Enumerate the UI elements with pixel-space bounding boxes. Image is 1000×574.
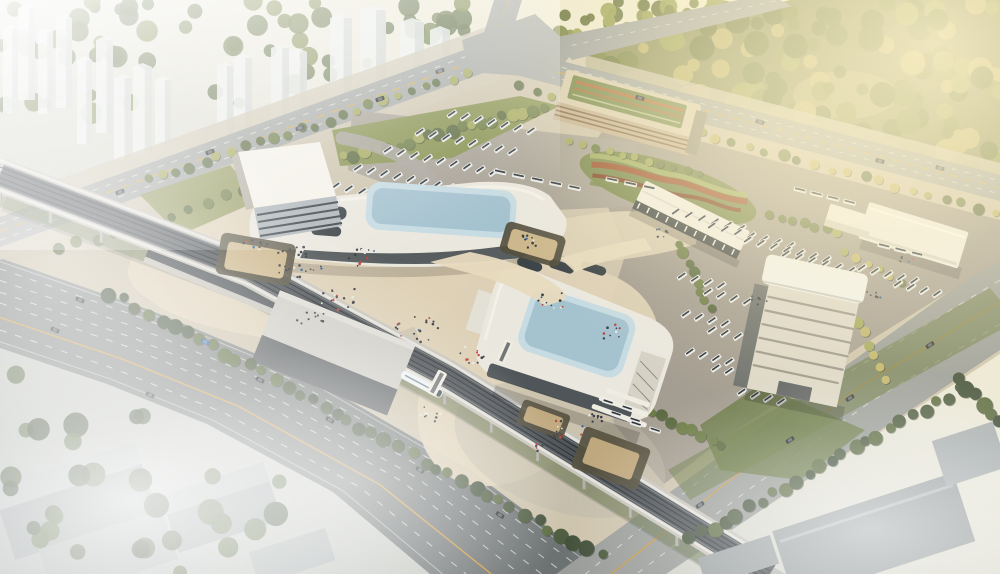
- architectural-rendering: [0, 0, 1000, 574]
- aerial-view-transit-hub: [0, 0, 1000, 574]
